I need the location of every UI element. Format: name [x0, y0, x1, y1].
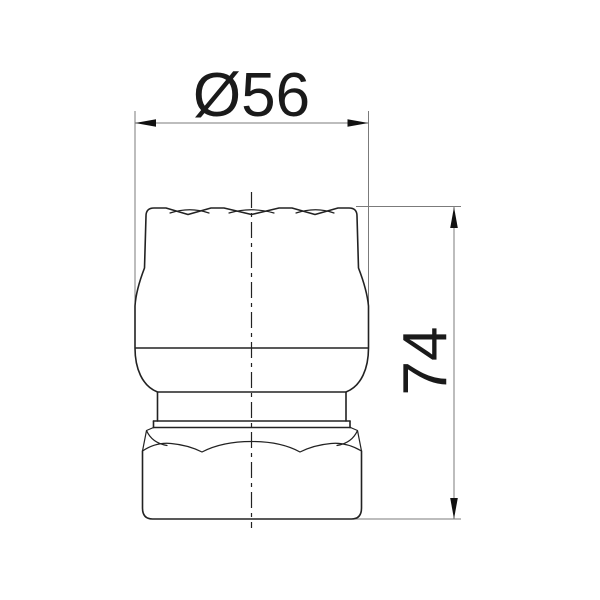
arrow-right-icon [348, 119, 369, 127]
nut-spike-right [337, 428, 362, 452]
drawing-canvas: Ø56 74 [0, 0, 600, 600]
nut-spike-left [143, 428, 168, 452]
arrow-down-icon [450, 498, 458, 519]
arrow-up-icon [450, 207, 458, 228]
technical-drawing: Ø56 74 [0, 0, 600, 600]
diameter-label: Ø56 [193, 61, 310, 130]
arrow-left-icon [135, 119, 156, 127]
height-label: 74 [391, 327, 460, 396]
